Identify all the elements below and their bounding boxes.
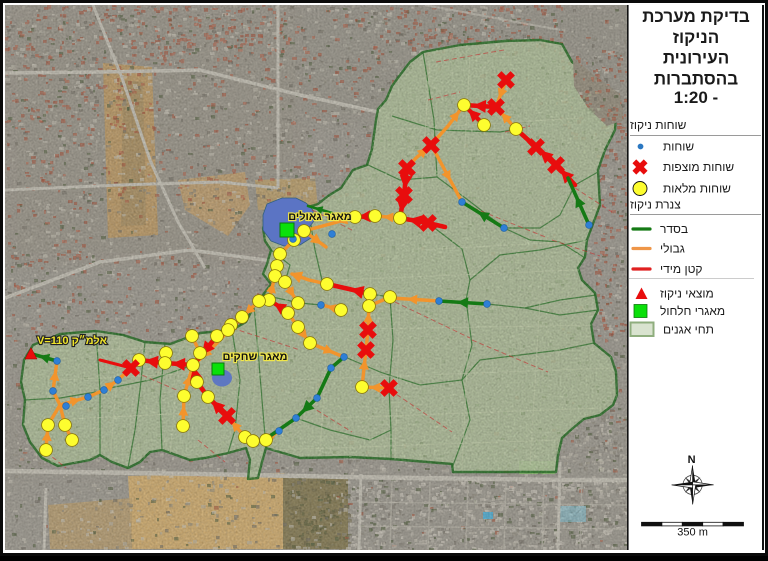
svg-text:גבולי: גבולי — [660, 242, 685, 256]
svg-text:שוחות ניקוז: שוחות ניקוז — [630, 118, 687, 132]
svg-text:קטן מידי: קטן מידי — [660, 262, 703, 276]
svg-text:בסדר: בסדר — [660, 222, 688, 236]
svg-text:מאגר שחקים: מאגר שחקים — [223, 351, 288, 363]
svg-text:תחי אגנים: תחי אגנים — [663, 323, 714, 337]
svg-text:בדיקת מערכת: בדיקת מערכת — [642, 7, 750, 26]
svg-text:אלמ״ק V=110: אלמ״ק V=110 — [37, 334, 107, 347]
svg-text:מוצאי ניקוז: מוצאי ניקוז — [660, 287, 714, 301]
svg-text:שוחות מלאות: שוחות מלאות — [663, 182, 731, 196]
svg-text:שוחות מוצפות: שוחות מוצפות — [663, 160, 734, 174]
svg-text:מאגרי חלחול: מאגרי חלחול — [660, 304, 725, 318]
svg-text:צנרת ניקוז: צנרת ניקוז — [630, 198, 681, 212]
svg-text:שוחות: שוחות — [663, 140, 694, 154]
svg-text:350 m: 350 m — [677, 527, 708, 539]
svg-text:העירונית: העירונית — [663, 49, 729, 68]
svg-text:בהסתברות: בהסתברות — [654, 70, 738, 89]
svg-text:הניקוז: הניקוז — [673, 28, 719, 47]
svg-text:‎1:20 -‎: ‎1:20 -‎ — [674, 88, 718, 107]
svg-text:N: N — [688, 454, 696, 466]
svg-text:מאגר גאולים: מאגר גאולים — [288, 210, 352, 223]
